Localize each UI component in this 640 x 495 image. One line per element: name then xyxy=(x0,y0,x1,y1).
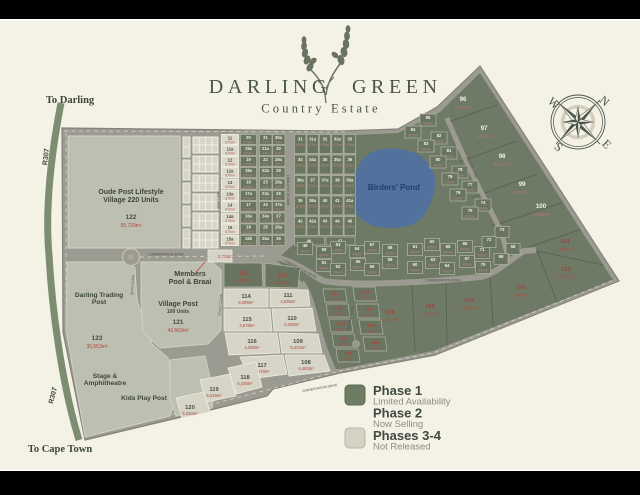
svg-text:900m²: 900m² xyxy=(428,263,438,267)
svg-text:31a: 31a xyxy=(309,137,317,142)
svg-text:675m: 675m xyxy=(321,163,330,167)
svg-text:675m: 675m xyxy=(321,143,330,147)
svg-text:115: 115 xyxy=(242,317,252,323)
svg-text:9,000m²: 9,000m² xyxy=(476,134,493,139)
svg-text:670: 670 xyxy=(263,151,269,155)
svg-text:104: 104 xyxy=(464,298,474,304)
svg-text:76: 76 xyxy=(456,190,461,195)
svg-text:113: 113 xyxy=(238,271,248,277)
svg-text:900m²: 900m² xyxy=(423,121,433,125)
svg-text:Post: Post xyxy=(92,299,107,306)
svg-text:1,000m²: 1,000m² xyxy=(332,313,345,317)
svg-text:28: 28 xyxy=(276,191,281,196)
svg-text:29a: 29a xyxy=(275,157,283,162)
svg-text:54: 54 xyxy=(355,246,360,251)
svg-text:9,000m²: 9,000m² xyxy=(494,162,511,167)
svg-text:60: 60 xyxy=(413,262,418,267)
svg-text:670: 670 xyxy=(276,196,282,200)
svg-text:29: 29 xyxy=(276,168,281,173)
svg-text:670m²: 670m² xyxy=(225,141,235,145)
svg-text:900m²: 900m² xyxy=(453,196,463,200)
svg-text:99: 99 xyxy=(519,181,526,188)
svg-text:34: 34 xyxy=(298,157,303,162)
svg-text:900m²: 900m² xyxy=(385,263,395,267)
svg-text:675m: 675m xyxy=(346,163,355,167)
svg-text:675m: 675m xyxy=(346,204,355,208)
svg-text:4,483m²: 4,483m² xyxy=(298,366,314,371)
svg-text:81: 81 xyxy=(447,148,452,153)
svg-text:900m²: 900m² xyxy=(465,188,475,192)
svg-text:675m: 675m xyxy=(321,204,330,208)
svg-text:100 Units: 100 Units xyxy=(167,309,189,315)
svg-text:675m: 675m xyxy=(296,143,305,147)
svg-text:5,436m²: 5,436m² xyxy=(237,381,253,386)
svg-text:900m²: 900m² xyxy=(478,206,488,210)
svg-text:670m²: 670m² xyxy=(225,230,235,234)
svg-text:670m²: 670m² xyxy=(244,230,255,234)
svg-text:33: 33 xyxy=(347,137,352,142)
svg-text:675m: 675m xyxy=(308,184,317,188)
svg-text:16a: 16a xyxy=(245,214,253,219)
svg-text:670: 670 xyxy=(263,173,269,177)
svg-text:900m²: 900m² xyxy=(462,262,472,266)
svg-text:To Darling: To Darling xyxy=(46,95,95,106)
svg-text:670: 670 xyxy=(263,162,269,166)
svg-text:675m: 675m xyxy=(333,143,342,147)
svg-text:SWIFT WAY: SWIFT WAY xyxy=(217,190,221,209)
svg-text:675m: 675m xyxy=(321,184,330,188)
svg-text:900m²: 900m² xyxy=(319,253,329,257)
svg-text:900m²: 900m² xyxy=(477,253,487,257)
svg-text:11: 11 xyxy=(228,136,233,141)
svg-text:670: 670 xyxy=(263,207,269,211)
svg-text:675m: 675m xyxy=(333,184,342,188)
svg-text:44: 44 xyxy=(335,219,340,224)
svg-text:670: 670 xyxy=(263,241,269,245)
svg-text:1,000m²: 1,000m² xyxy=(362,314,375,318)
svg-text:675m: 675m xyxy=(346,143,355,147)
svg-text:62: 62 xyxy=(430,239,435,244)
svg-text:38: 38 xyxy=(335,178,340,183)
svg-text:670m²: 670m² xyxy=(225,185,235,189)
svg-text:12a: 12a xyxy=(227,169,235,174)
svg-text:106: 106 xyxy=(385,310,395,316)
svg-text:39: 39 xyxy=(298,198,303,203)
svg-text:670: 670 xyxy=(276,185,282,189)
svg-text:675m: 675m xyxy=(333,204,342,208)
svg-text:CONSERVATION DRIVE: CONSERVATION DRIVE xyxy=(425,279,461,283)
svg-text:127: 127 xyxy=(340,336,348,342)
svg-text:To Cape Town: To Cape Town xyxy=(28,444,93,455)
svg-text:80: 80 xyxy=(436,157,441,162)
svg-text:900m²: 900m² xyxy=(410,250,420,254)
svg-text:78: 78 xyxy=(458,167,463,172)
svg-text:CONSERVATION DRIVE: CONSERVATION DRIVE xyxy=(148,253,184,257)
svg-text:900m²: 900m² xyxy=(421,147,431,151)
svg-text:1,000m²: 1,000m² xyxy=(359,297,372,301)
svg-text:95,729m²: 95,729m² xyxy=(120,223,141,229)
svg-text:670: 670 xyxy=(276,140,282,144)
svg-text:65: 65 xyxy=(446,244,451,249)
svg-text:68: 68 xyxy=(511,244,516,249)
svg-text:13: 13 xyxy=(228,180,233,185)
svg-text:58: 58 xyxy=(388,245,393,250)
svg-text:5,038m²: 5,038m² xyxy=(284,322,300,327)
svg-text:32a: 32a xyxy=(334,137,342,142)
svg-text:118: 118 xyxy=(240,375,250,381)
svg-text:DARLING: DARLING xyxy=(209,76,331,98)
svg-text:900m²: 900m² xyxy=(442,269,452,273)
svg-text:125: 125 xyxy=(334,306,342,312)
svg-text:4,978m²: 4,978m² xyxy=(239,323,255,328)
svg-text:900m²: 900m² xyxy=(434,139,444,143)
svg-text:37: 37 xyxy=(310,178,315,183)
svg-text:15: 15 xyxy=(228,225,233,230)
svg-text:84: 84 xyxy=(411,127,416,132)
svg-text:50: 50 xyxy=(322,247,327,252)
svg-text:83: 83 xyxy=(424,141,429,146)
svg-text:72: 72 xyxy=(487,237,492,242)
svg-text:5,099m²: 5,099m² xyxy=(238,300,254,305)
svg-text:41a: 41a xyxy=(346,198,354,203)
svg-text:109: 109 xyxy=(293,339,303,345)
svg-text:900m²: 900m² xyxy=(427,245,437,249)
svg-text:24: 24 xyxy=(263,202,268,207)
svg-text:900m²: 900m² xyxy=(319,266,329,270)
svg-text:35a: 35a xyxy=(334,157,342,162)
svg-text:900m²: 900m² xyxy=(353,265,363,269)
svg-text:85: 85 xyxy=(426,115,431,120)
svg-text:39a: 39a xyxy=(309,198,317,203)
svg-text:64: 64 xyxy=(445,263,450,268)
svg-text:5,040m²: 5,040m² xyxy=(182,411,198,416)
svg-text:BIRD VILLA STREET: BIRD VILLA STREET xyxy=(287,175,291,206)
svg-text:103: 103 xyxy=(516,285,526,291)
svg-text:42a: 42a xyxy=(309,219,317,224)
svg-text:675m: 675m xyxy=(321,225,330,229)
svg-text:670: 670 xyxy=(263,219,269,223)
svg-text:37a: 37a xyxy=(322,178,330,183)
svg-text:110: 110 xyxy=(287,316,296,322)
svg-text:900m²: 900m² xyxy=(333,270,343,274)
svg-text:98: 98 xyxy=(499,153,506,160)
svg-text:38a: 38a xyxy=(346,178,354,183)
svg-text:74: 74 xyxy=(481,200,486,205)
svg-text:900m²: 900m² xyxy=(443,250,453,254)
svg-text:51: 51 xyxy=(322,260,327,265)
svg-text:19: 19 xyxy=(246,157,251,162)
svg-text:675m: 675m xyxy=(296,225,305,229)
svg-text:1,000m²: 1,000m² xyxy=(369,347,382,351)
svg-text:Village 220 Units: Village 220 Units xyxy=(103,197,159,204)
svg-text:19a: 19a xyxy=(245,146,253,151)
svg-text:Country Estate: Country Estate xyxy=(261,102,380,116)
svg-text:124: 124 xyxy=(331,291,339,297)
svg-text:900m²: 900m² xyxy=(460,247,470,251)
svg-text:Amphitheatre: Amphitheatre xyxy=(84,380,127,387)
svg-text:129: 129 xyxy=(371,340,379,346)
svg-text:49: 49 xyxy=(303,243,308,248)
svg-text:4,536m²: 4,536m² xyxy=(280,299,296,304)
svg-text:1,000m²: 1,000m² xyxy=(342,358,355,362)
svg-text:9,000m²: 9,000m² xyxy=(533,212,550,217)
svg-text:900m²: 900m² xyxy=(410,268,420,272)
svg-text:108: 108 xyxy=(301,360,311,366)
svg-text:670: 670 xyxy=(276,207,282,211)
svg-text:24a: 24a xyxy=(262,214,270,219)
svg-text:20: 20 xyxy=(246,135,251,140)
svg-text:GREEN: GREEN xyxy=(352,76,442,98)
svg-text:27: 27 xyxy=(276,214,281,219)
svg-text:100: 100 xyxy=(536,203,547,210)
svg-text:18a: 18a xyxy=(245,168,253,173)
svg-text:59: 59 xyxy=(388,257,393,262)
svg-text:12: 12 xyxy=(228,158,233,163)
svg-text:15b: 15b xyxy=(245,236,253,241)
svg-text:30a: 30a xyxy=(275,135,283,140)
svg-text:36: 36 xyxy=(347,157,352,162)
svg-text:117: 117 xyxy=(257,363,266,369)
svg-text:22: 22 xyxy=(263,157,268,162)
svg-text:102: 102 xyxy=(561,267,571,273)
svg-text:670m²: 670m² xyxy=(244,185,255,189)
svg-text:97: 97 xyxy=(481,125,488,132)
svg-text:670: 670 xyxy=(276,151,282,155)
svg-text:670: 670 xyxy=(276,241,282,245)
svg-text:69: 69 xyxy=(499,254,504,259)
svg-text:670: 670 xyxy=(263,140,269,144)
svg-text:10,000m²: 10,000m² xyxy=(421,312,439,317)
svg-text:70: 70 xyxy=(481,262,486,267)
svg-text:131: 131 xyxy=(364,307,372,313)
svg-text:112: 112 xyxy=(277,273,286,279)
svg-text:26: 26 xyxy=(276,236,281,241)
svg-text:13a: 13a xyxy=(227,192,235,197)
svg-text:670m²: 670m² xyxy=(244,196,255,200)
svg-text:16: 16 xyxy=(246,225,251,230)
svg-text:Village Post: Village Post xyxy=(158,301,198,308)
svg-text:675m: 675m xyxy=(308,163,317,167)
svg-text:670m²: 670m² xyxy=(244,162,255,166)
svg-text:670m²: 670m² xyxy=(225,174,235,178)
svg-text:900m²: 900m² xyxy=(367,270,377,274)
svg-text:675m: 675m xyxy=(296,163,305,167)
svg-text:Pool & Braai: Pool & Braai xyxy=(169,277,212,286)
svg-text:670m²: 670m² xyxy=(225,197,235,201)
svg-text:111: 111 xyxy=(283,293,293,299)
svg-text:63: 63 xyxy=(431,257,436,262)
svg-text:670: 670 xyxy=(276,230,282,234)
svg-text:675m: 675m xyxy=(333,225,342,229)
svg-text:53: 53 xyxy=(336,242,341,247)
svg-text:32: 32 xyxy=(323,137,328,142)
svg-text:670: 670 xyxy=(276,162,282,166)
svg-text:11a: 11a xyxy=(227,147,234,152)
svg-text:4,338m²: 4,338m² xyxy=(244,345,260,350)
svg-text:119: 119 xyxy=(209,387,219,393)
svg-text:17: 17 xyxy=(246,202,251,207)
svg-text:675m: 675m xyxy=(333,163,342,167)
svg-text:31: 31 xyxy=(298,137,303,142)
svg-text:23a: 23a xyxy=(262,191,270,196)
svg-text:Not Released: Not Released xyxy=(373,442,431,453)
svg-text:900m²: 900m² xyxy=(333,248,343,252)
svg-text:Darling Trading: Darling Trading xyxy=(75,292,123,299)
svg-text:121: 121 xyxy=(173,319,184,326)
svg-text:36a: 36a xyxy=(297,178,305,183)
svg-text:9,000m²: 9,000m² xyxy=(514,190,531,195)
svg-text:670m²: 670m² xyxy=(225,219,235,223)
svg-text:5,319m²: 5,319m² xyxy=(206,393,222,398)
svg-text:15a: 15a xyxy=(227,237,235,242)
svg-text:670m²: 670m² xyxy=(244,207,255,211)
svg-text:670m²: 670m² xyxy=(244,140,255,144)
svg-text:42: 42 xyxy=(298,219,303,224)
svg-text:128: 128 xyxy=(344,351,352,357)
svg-text:96: 96 xyxy=(460,96,467,103)
svg-text:45: 45 xyxy=(347,219,352,224)
svg-text:670: 670 xyxy=(276,219,282,223)
svg-text:675m: 675m xyxy=(346,184,355,188)
svg-text:670: 670 xyxy=(263,196,269,200)
svg-text:130: 130 xyxy=(367,323,375,329)
svg-text:10,000m²: 10,000m² xyxy=(556,247,574,252)
svg-text:126: 126 xyxy=(337,321,345,327)
svg-text:10,000m²: 10,000m² xyxy=(557,275,575,280)
svg-text:900m²: 900m² xyxy=(433,163,443,167)
svg-text:122: 122 xyxy=(126,214,137,221)
svg-text:43,663m²: 43,663m² xyxy=(167,328,188,334)
svg-text:10,000m²: 10,000m² xyxy=(512,293,530,298)
svg-text:675m: 675m xyxy=(346,225,355,229)
svg-text:670m²: 670m² xyxy=(225,152,235,156)
svg-text:116: 116 xyxy=(247,339,257,345)
svg-text:66: 66 xyxy=(463,241,468,246)
svg-text:82: 82 xyxy=(437,133,442,138)
svg-text:101: 101 xyxy=(560,239,570,245)
svg-text:105: 105 xyxy=(425,304,435,310)
svg-text:670m²: 670m² xyxy=(244,219,255,223)
svg-text:670m²: 670m² xyxy=(225,208,235,212)
svg-text:1,000m²: 1,000m² xyxy=(335,328,348,332)
svg-text:900m²: 900m² xyxy=(478,268,488,272)
svg-text:9,000m²: 9,000m² xyxy=(455,105,472,110)
svg-text:67: 67 xyxy=(465,256,470,261)
svg-text:5,323m²: 5,323m² xyxy=(290,345,306,350)
svg-text:Stage &: Stage & xyxy=(93,373,118,380)
svg-text:900m²: 900m² xyxy=(300,249,310,253)
svg-text:670: 670 xyxy=(276,173,282,177)
svg-text:27a: 27a xyxy=(275,202,283,207)
svg-text:21a: 21a xyxy=(262,146,270,151)
svg-text:77: 77 xyxy=(468,182,473,187)
svg-text:21: 21 xyxy=(263,135,268,140)
svg-text:52: 52 xyxy=(336,264,341,269)
svg-text:900m²: 900m² xyxy=(465,214,475,218)
svg-text:132: 132 xyxy=(361,290,369,296)
svg-text:1,000m²: 1,000m² xyxy=(365,330,378,334)
svg-text:57: 57 xyxy=(370,242,375,247)
svg-text:675m: 675m xyxy=(308,143,317,147)
svg-text:30: 30 xyxy=(276,146,281,151)
svg-text:670m²: 670m² xyxy=(225,242,235,246)
svg-text:35: 35 xyxy=(323,157,328,162)
svg-text:1,000m²: 1,000m² xyxy=(338,343,351,347)
svg-text:675m: 675m xyxy=(296,184,305,188)
svg-text:670: 670 xyxy=(263,185,269,189)
svg-text:670m²: 670m² xyxy=(244,151,255,155)
svg-text:14: 14 xyxy=(228,203,233,208)
svg-text:900m²: 900m² xyxy=(445,180,455,184)
svg-text:40: 40 xyxy=(323,198,328,203)
svg-text:55: 55 xyxy=(356,259,361,264)
svg-text:14a: 14a xyxy=(227,214,235,219)
svg-text:10,000m²: 10,000m² xyxy=(460,306,478,311)
svg-text:670: 670 xyxy=(263,230,269,234)
svg-text:28a: 28a xyxy=(275,180,283,185)
svg-text:670m²: 670m² xyxy=(225,163,235,167)
svg-text:25: 25 xyxy=(263,225,268,230)
svg-text:18: 18 xyxy=(246,180,251,185)
svg-text:41: 41 xyxy=(335,198,340,203)
svg-text:10,000m²: 10,000m² xyxy=(381,318,399,323)
svg-text:Oude Post Lifestyle: Oude Post Lifestyle xyxy=(98,189,163,196)
svg-text:900m²: 900m² xyxy=(367,248,377,252)
svg-text:123: 123 xyxy=(92,335,103,342)
svg-text:56: 56 xyxy=(370,264,375,269)
svg-text:Kids Play Post: Kids Play Post xyxy=(121,395,168,402)
svg-text:26a: 26a xyxy=(275,225,283,230)
svg-text:670m²: 670m² xyxy=(244,241,255,245)
svg-text:675m: 675m xyxy=(296,204,305,208)
svg-text:900m²: 900m² xyxy=(352,252,362,256)
svg-text:61: 61 xyxy=(413,244,418,249)
svg-text:23: 23 xyxy=(263,180,268,185)
svg-text:900m²: 900m² xyxy=(408,133,418,137)
svg-text:675m: 675m xyxy=(308,225,317,229)
svg-text:43: 43 xyxy=(323,219,328,224)
svg-text:36,553m²: 36,553m² xyxy=(86,344,107,350)
svg-text:34a: 34a xyxy=(309,157,317,162)
svg-text:25a: 25a xyxy=(262,236,270,241)
svg-text:114: 114 xyxy=(241,294,251,300)
svg-text:1,000m²: 1,000m² xyxy=(329,298,342,302)
svg-text:675m: 675m xyxy=(308,204,317,208)
svg-text:75: 75 xyxy=(468,208,473,213)
svg-text:73: 73 xyxy=(500,227,505,232)
svg-text:22a: 22a xyxy=(262,168,270,173)
svg-text:79: 79 xyxy=(448,174,453,179)
svg-text:670m²: 670m² xyxy=(244,173,255,177)
svg-text:5,003m²: 5,003m² xyxy=(235,278,251,283)
svg-text:17a: 17a xyxy=(245,191,253,196)
svg-text:Birders' Pond: Birders' Pond xyxy=(368,183,420,192)
svg-text:5,334m²: 5,334m² xyxy=(274,280,290,285)
svg-text:900m²: 900m² xyxy=(385,251,395,255)
